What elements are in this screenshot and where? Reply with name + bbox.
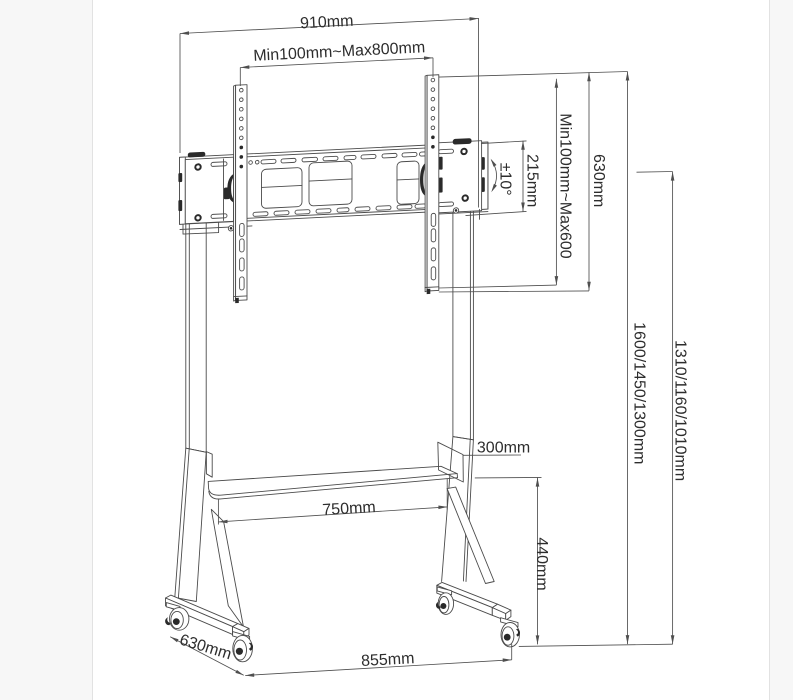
svg-text:215mm: 215mm: [524, 154, 541, 207]
svg-text:750mm: 750mm: [322, 499, 376, 519]
svg-text:Min100mm~Max600: Min100mm~Max600: [557, 113, 574, 259]
svg-text:440mm: 440mm: [533, 537, 550, 590]
svg-text:855mm: 855mm: [361, 650, 415, 670]
svg-text:630mm: 630mm: [590, 154, 607, 207]
svg-text:910mm: 910mm: [300, 13, 354, 33]
svg-text:±10°: ±10°: [496, 163, 513, 196]
svg-text:300mm: 300mm: [477, 439, 530, 456]
svg-text:1310/1160/1010mm: 1310/1160/1010mm: [671, 340, 688, 481]
svg-text:1600/1450/1300mm: 1600/1450/1300mm: [630, 322, 647, 464]
